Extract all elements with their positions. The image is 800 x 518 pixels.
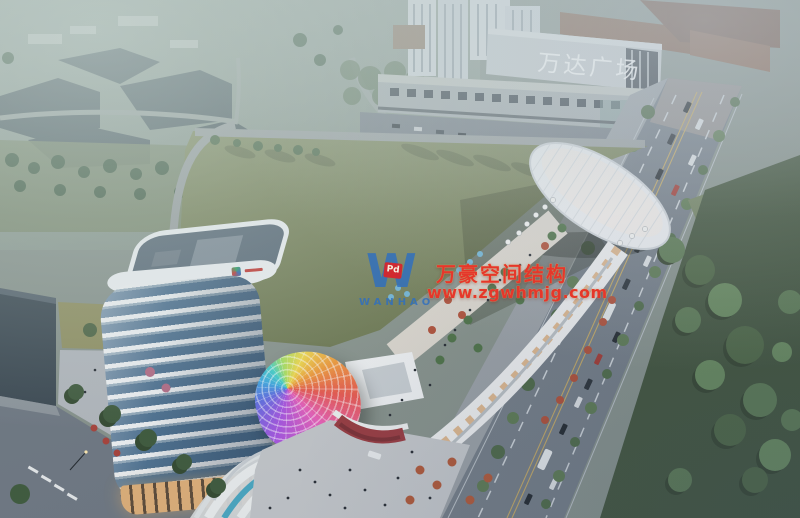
retail-band-building: [432, 248, 618, 452]
white-car: [367, 450, 381, 460]
northwest-haze-ground: [0, 0, 480, 250]
terrace-red-trees: [428, 242, 616, 424]
oval-roof-building: [513, 122, 686, 270]
terrace-promenade: [396, 222, 558, 356]
street-lamp: [70, 452, 86, 470]
plaza-orange-trees: [406, 458, 493, 505]
tower-brand-text-mark: [245, 268, 263, 273]
brown-midrise: [393, 25, 425, 49]
tree-shadows-on-field: [223, 140, 546, 180]
avenue: [400, 78, 742, 518]
north-background-trees: [340, 60, 425, 106]
tower-body: [98, 273, 276, 500]
wanhao-logo-badge: Pd: [383, 262, 402, 279]
northwest-roads: [0, 58, 400, 130]
residential-towers: [393, 0, 540, 92]
plaza-storefront-row: [360, 74, 668, 152]
oval-building-shadow: [519, 232, 651, 258]
industrial-sheds: [28, 16, 198, 48]
building-shadow-on-field: [460, 180, 612, 325]
aerial-rendering: 万达广场: [0, 0, 800, 518]
industrial-buildings: [0, 48, 252, 168]
dark-warehouse: [0, 294, 56, 410]
wanhao-brand-text: WANHAO: [359, 297, 434, 308]
rooftop-unit: [151, 250, 181, 267]
old-town-roofs: [560, 0, 780, 72]
northwest-lawn: [0, 140, 340, 232]
terrace-green-trees: [436, 224, 567, 365]
blue-umbrellas: [388, 251, 483, 300]
watermark-line1: 万豪空间结构: [436, 258, 568, 287]
tower-shading: [98, 273, 276, 500]
northwest-trees: [2, 25, 343, 200]
avenue-vehicles: [524, 101, 704, 505]
field-north-road: [195, 128, 645, 148]
parked-cars: [392, 124, 564, 149]
plaza-street: [360, 112, 668, 152]
watermark-line2: www.zgwhmjg.com: [427, 283, 608, 302]
wanhao-logo-w-icon: W: [366, 248, 417, 294]
park: [600, 155, 800, 518]
field-edge-trees: [210, 135, 320, 156]
park-tree-clusters: [657, 237, 800, 496]
avenue-tree-row-right: [541, 97, 740, 509]
wanda-plaza-building: 万达广场: [486, 28, 662, 94]
lit-storefronts: [432, 248, 618, 452]
wanda-plaza-sign: 万达广场: [536, 50, 642, 85]
terrace-people: [389, 254, 532, 417]
white-umbrellas: [505, 197, 647, 245]
avenue-tree-row-left: [477, 105, 655, 492]
